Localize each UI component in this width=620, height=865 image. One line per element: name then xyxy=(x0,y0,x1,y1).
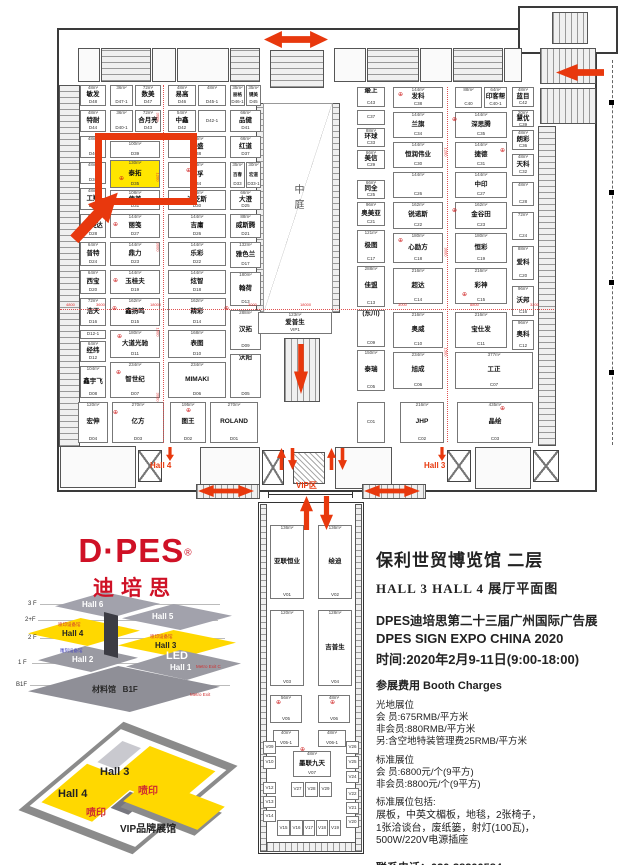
facility-block xyxy=(334,48,366,82)
booth-D45[interactable]: 35m²键美D45 xyxy=(246,85,261,106)
hydrant-icon: ⊕ xyxy=(398,92,403,98)
booth-name: 吉庸 xyxy=(191,223,204,230)
booth-name: 宏道 xyxy=(249,173,258,178)
booth-C11[interactable]: 216m²宝仕发C11 xyxy=(455,312,507,348)
booth-code: C22 xyxy=(414,223,422,228)
booth-area: 234m² xyxy=(191,363,204,368)
notch-stair xyxy=(552,12,588,44)
hydrant-icon: ⊕ xyxy=(276,700,281,706)
booth-V29[interactable]: V29 xyxy=(319,782,332,797)
booth-name: 金谷田 xyxy=(471,212,491,219)
facility-block xyxy=(177,48,229,82)
booth-C34[interactable]: 144m²兰旗C34 xyxy=(393,112,443,138)
atrium-top-escalator xyxy=(270,50,324,88)
booth-code: C38 xyxy=(414,102,422,107)
booth-area: 270m² xyxy=(132,403,145,408)
booth-name: 心励方 xyxy=(408,245,428,252)
booth-D46-1[interactable]: 35m²丽格D46-1 xyxy=(230,85,245,106)
booth-name: 晶绘 xyxy=(489,419,502,426)
elevator-icon xyxy=(533,450,559,482)
booth-C32[interactable]: 48m²天科C32 xyxy=(512,154,534,176)
booth-area: 88m² xyxy=(518,247,528,252)
dimension-text: 1500 xyxy=(443,348,447,357)
hydrant-icon: ⊕ xyxy=(330,700,335,706)
booth-code: C27 xyxy=(477,192,485,197)
booth-code: D07 xyxy=(131,392,139,397)
booth-C14[interactable]: 216m²超达C14 xyxy=(393,268,443,304)
booth-C15[interactable]: 216m²彩神C15 xyxy=(455,268,507,304)
booth-area: 216m² xyxy=(412,313,425,318)
booth-area: 162m² xyxy=(412,203,425,208)
booth-code: D37 xyxy=(241,152,249,157)
booth-V21[interactable]: V21 xyxy=(346,802,359,814)
booth-D06[interactable]: 234m²MIMAKID06 xyxy=(168,362,226,398)
hydrant-icon: ⊕ xyxy=(113,222,118,228)
b1f-caption: B1F xyxy=(123,685,138,694)
booth-D24[interactable]: 64m²普特D24 xyxy=(80,242,106,266)
standard-booth-title: 标准展位 xyxy=(376,756,616,767)
booth-code: D17 xyxy=(241,262,249,267)
booth-code: C31 xyxy=(477,162,485,167)
vip-base xyxy=(266,842,356,852)
booth-V26[interactable]: V26 xyxy=(346,741,359,754)
booth-D47[interactable]: 72m²数美D47 xyxy=(135,85,161,106)
booth-V28[interactable]: V28 xyxy=(305,782,318,797)
booth-C40-1[interactable]: 64m²印客帮C40-1 xyxy=(484,87,507,108)
booth-D42[interactable]: 54m²中鑫D42 xyxy=(168,110,196,132)
hall3-caption: 喷印设备馆 xyxy=(150,634,173,640)
booth-V15[interactable]: V15 xyxy=(277,820,290,836)
hydrant-icon: ⊕ xyxy=(500,406,505,412)
facility-block xyxy=(420,48,452,82)
booth-V25[interactable]: V25 xyxy=(346,756,359,769)
right-facility-strip xyxy=(538,126,556,446)
booth-C40[interactable]: 88m²C40 xyxy=(455,87,482,108)
booth-C10[interactable]: 216m²奥威C10 xyxy=(393,312,443,348)
booth-code: C32 xyxy=(519,170,527,175)
column-marker xyxy=(609,280,614,285)
booth-C37[interactable]: C37 xyxy=(357,110,385,125)
escalator-block xyxy=(453,48,503,82)
booth-D42-1[interactable]: D42-1 xyxy=(198,110,226,132)
booth-D20[interactable]: 64m²西宝D20 xyxy=(80,270,106,294)
booth-code: V10 xyxy=(265,760,273,765)
booth-C29[interactable]: 66m²美信C29 xyxy=(357,150,385,169)
column-marker xyxy=(609,370,614,375)
booth-code: V05-1 xyxy=(280,741,292,746)
venue-title: 保利世贸博览馆 二层 xyxy=(376,546,616,571)
booth-area: 136m² xyxy=(329,526,342,531)
booth-code: D10 xyxy=(193,352,201,357)
booth-D21[interactable]: 88m²威斯腾D21 xyxy=(230,214,261,238)
booth-D48[interactable]: 48m²敏发D48 xyxy=(80,85,106,106)
hydrant-icon: ⊕ xyxy=(117,334,122,340)
booth-code: C40-1 xyxy=(489,102,501,107)
booth-C31[interactable]: 144m²捷德C31 xyxy=(455,142,507,168)
booth-code: D42 xyxy=(178,126,186,131)
booth-code: C30 xyxy=(414,162,422,167)
booth-C12[interactable]: 96m²奥科C12 xyxy=(512,320,534,350)
booth-C16[interactable]: 96m²沃邦C16 xyxy=(512,286,534,316)
booth-D18[interactable]: 144m²炫智D18 xyxy=(168,270,226,294)
hydrant-icon: ⊕ xyxy=(112,306,117,312)
booth-code: D22 xyxy=(193,260,201,265)
booth-C24[interactable]: 72m²C24 xyxy=(512,212,534,240)
booth-D41[interactable]: 66m²品健D41 xyxy=(230,110,261,132)
booth-C28[interactable]: 48m²C28 xyxy=(512,182,534,206)
booth-code: V04 xyxy=(331,680,339,685)
booth-code: V22 xyxy=(348,792,356,797)
booth-C33[interactable]: 88m²环球C33 xyxy=(357,128,385,147)
booth-code: D43 xyxy=(144,126,152,131)
booth-code: D08 xyxy=(89,392,97,397)
metro-exit-c-label: Metro Exit C xyxy=(196,664,221,669)
booth-code: D48 xyxy=(89,100,97,105)
booth-code: D02 xyxy=(184,437,192,442)
booth-code: D45-1 xyxy=(206,100,218,105)
booth-code: D40-1 xyxy=(115,126,127,131)
booth-area: 216m² xyxy=(416,403,429,408)
booth-area: 195m² xyxy=(182,403,195,408)
booth-D45-1[interactable]: 48m²D45-1 xyxy=(198,85,226,106)
booth-D09[interactable]: 288m²汉拓D09 xyxy=(230,310,261,350)
booth-area: 48m² xyxy=(207,86,217,91)
booth-V27[interactable]: V27 xyxy=(291,782,304,797)
booth-D47-1[interactable]: 36m²D47-1 xyxy=(110,85,133,106)
booth-name: 佳盟 xyxy=(365,283,378,290)
booth-V12[interactable]: V12 xyxy=(263,782,276,794)
booth-D07[interactable]: 234m²智世纪D07 xyxy=(110,362,160,398)
booth-area: 377m² xyxy=(488,353,501,358)
booth-V24[interactable]: V24 xyxy=(346,771,359,783)
booth-name: 汉拓 xyxy=(239,327,252,334)
booth-V13[interactable]: V13 xyxy=(263,796,276,808)
hydrant-icon: ⊕ xyxy=(186,408,191,414)
booth-V20[interactable]: V20 xyxy=(346,816,359,828)
booth-code: D26 xyxy=(193,232,201,237)
charges-title: 参展费用 Booth Charges xyxy=(376,677,616,693)
hydrant-icon: ⊕ xyxy=(224,306,229,312)
booth-D12-1[interactable]: D12-1 xyxy=(80,330,106,339)
booth-area: 270m² xyxy=(228,403,241,408)
booth-area: 72m² xyxy=(143,111,153,116)
booth-area: 121m² xyxy=(365,231,378,236)
booth-C17[interactable]: 121m²极图C17 xyxy=(357,230,385,263)
booth-D40-1[interactable]: 36m²D40-1 xyxy=(110,110,133,132)
booth-D22[interactable]: 144m²乐彩D22 xyxy=(168,242,226,266)
non-member-price: 非会员:880RMB/平方米 xyxy=(376,725,616,736)
booth-area: 36m² xyxy=(116,86,126,91)
booth-code: C25 xyxy=(367,193,375,198)
booth-code: V03 xyxy=(283,680,291,685)
booth-D13[interactable]: 180m²翰荷D13 xyxy=(230,272,261,306)
dimension-text: 8800 xyxy=(470,303,479,307)
hall4-label: Hall 4 xyxy=(150,461,171,470)
booth-V18[interactable]: V18 xyxy=(316,820,328,836)
dimension-text: 3000 xyxy=(155,113,159,122)
booth-name: 绘迪 xyxy=(329,559,342,566)
booth-code: V29 xyxy=(321,787,329,792)
booth-area: 144m² xyxy=(475,113,488,118)
booth-code: V21 xyxy=(348,806,356,811)
booth-code: C07 xyxy=(490,383,498,388)
booth-code: D27 xyxy=(131,232,139,237)
booth-C19[interactable]: 180m²恒彩C19 xyxy=(455,233,507,263)
booth-code: V20 xyxy=(348,820,356,825)
stair-block xyxy=(540,48,596,84)
booth-code: C18 xyxy=(414,257,422,262)
brand-logo: D·PES® 迪培思 xyxy=(50,532,220,602)
booth-code: V25 xyxy=(348,760,356,765)
booth-area: 144m² xyxy=(412,113,425,118)
includes-line1: 展板，中英文楣板，地毯，2张椅子， xyxy=(376,810,616,822)
booth-area: 40m² xyxy=(281,731,291,736)
booth-code: VIP1 xyxy=(290,328,300,333)
stair-block xyxy=(540,88,596,124)
hydrant-icon: ⊕ xyxy=(398,238,403,244)
booth-name: 吉普生 xyxy=(325,645,345,652)
booth-area: 180m² xyxy=(475,234,488,239)
booth-name: 鼎力 xyxy=(129,251,142,258)
booth-D14[interactable]: 162m²精彩D14 xyxy=(168,298,226,326)
brand-chinese: 迪培思 xyxy=(50,572,220,602)
booth-C22[interactable]: 162m²锐诺斯C22 xyxy=(393,202,443,229)
booth-D08[interactable]: 104m²鑫宇飞D08 xyxy=(80,366,106,398)
booth-C27[interactable]: 144m²中印C27 xyxy=(455,172,507,198)
booth-area: 144m² xyxy=(191,243,204,248)
booth-name: 大道光驰 xyxy=(122,341,148,348)
vip-area-label: VIP区 xyxy=(296,480,317,491)
booth-C42[interactable]: 48m²蓝目C42 xyxy=(512,87,534,107)
booth-area: 120m² xyxy=(281,611,294,616)
booth-name: 爱普生 xyxy=(285,320,305,327)
booth-area: 48m² xyxy=(88,111,98,116)
expo-time: 时间:2020年2月9-11日(9:00-18:00) xyxy=(376,649,616,668)
booth-area: 162m² xyxy=(475,203,488,208)
booth-V10[interactable]: V10 xyxy=(263,756,276,769)
booth-code: C09 xyxy=(367,341,375,346)
column-marker xyxy=(609,100,614,105)
standard-member-price: 会 员:6800元/个(9平方) xyxy=(376,768,616,779)
booth-name: 捷德 xyxy=(475,152,488,159)
floor-label-3f: 3 F xyxy=(28,601,37,607)
booth-area: 64m² xyxy=(88,271,98,276)
booth-V16[interactable]: V16 xyxy=(290,820,303,836)
booth-area: 123m² xyxy=(289,313,302,318)
booth-C20[interactable]: 88m²爱科C20 xyxy=(512,246,534,280)
booth-name: 键美 xyxy=(249,93,258,98)
booth-name: 经纬 xyxy=(87,348,100,355)
atrium-label: 中庭 xyxy=(290,184,305,214)
booth-name: (东川) xyxy=(362,311,379,318)
booth-C36[interactable]: 48m²朗彩C36 xyxy=(512,130,534,150)
booth-area: 48m² xyxy=(177,86,187,91)
booth-name: 宏伸 xyxy=(87,419,100,426)
dimension-text: 3000 xyxy=(248,303,257,307)
booth-code: C29 xyxy=(367,163,375,168)
dimension-line xyxy=(60,309,554,310)
booth-code: C37 xyxy=(367,115,375,120)
booth-C13[interactable]: 288m²佳盟C13 xyxy=(357,266,385,307)
booth-V06-1[interactable]: 48m²V06-1 xyxy=(318,730,346,747)
metro-exit-label: Metro Exit xyxy=(190,692,210,697)
booth-area: 72m² xyxy=(143,86,153,91)
booth-name: 翰荷 xyxy=(239,286,252,293)
booth-D23[interactable]: 144m²鼎力D23 xyxy=(110,242,160,266)
booth-area: 66m² xyxy=(240,137,250,142)
booth-C02[interactable]: 216m²JHPC02 xyxy=(400,402,444,443)
booth-D46[interactable]: 48m²易高D46 xyxy=(168,85,196,106)
booth-V17[interactable]: V17 xyxy=(303,820,315,836)
booth-name: 奥科 xyxy=(517,332,530,339)
booth-C03[interactable]: 435m²晶绘C03 xyxy=(457,402,533,443)
booth-C01[interactable]: C01 xyxy=(357,402,385,443)
booth-code: D46 xyxy=(178,100,186,105)
expo-name-en: DPES SIGN EXPO CHINA 2020 xyxy=(376,631,616,646)
booth-V05-1[interactable]: 40m²V05-1 xyxy=(273,730,299,747)
booth-code: V19 xyxy=(331,826,339,831)
booth-name: 雅色兰 xyxy=(236,252,256,259)
booth-C06[interactable]: 234m²旭成C06 xyxy=(393,352,443,389)
booth-code: V16 xyxy=(292,826,300,831)
escalator-block xyxy=(101,48,151,82)
booth-V03[interactable]: 120m²V03 xyxy=(270,610,304,686)
booth-C05[interactable]: 150m²泰瑞C05 xyxy=(357,350,385,391)
booth-code: C16 xyxy=(519,310,527,315)
mini-vip-label: VIP品牌展馆 xyxy=(120,820,176,835)
booth-C39[interactable]: 20m²慧优C39 xyxy=(512,110,534,127)
booth-name: 恒彩 xyxy=(475,245,488,252)
management-fee-note: 另:含空地特装管理费25RMB/平方米 xyxy=(376,737,616,748)
hall2-caption: 雕刻设备馆 xyxy=(60,648,83,654)
booth-D10[interactable]: 168m²表图D10 xyxy=(168,330,226,358)
booth-C09[interactable]: (东川)C09 xyxy=(357,310,385,347)
booth-V01[interactable]: 136m²亚联恒业V01 xyxy=(270,525,304,599)
booth-D25[interactable]: 66m²大澄D25 xyxy=(230,190,261,210)
booth-D33-1[interactable]: 30m²宏道D33-1 xyxy=(246,162,261,188)
booth-code: D24 xyxy=(89,260,97,265)
booth-D44[interactable]: 48m²特耐D44 xyxy=(80,110,106,132)
booth-C23[interactable]: 162m²金谷田C23 xyxy=(455,202,507,229)
booth-V14[interactable]: V14 xyxy=(263,810,276,822)
booth-name: 数美 xyxy=(142,92,155,99)
booth-V19[interactable]: V19 xyxy=(329,820,341,836)
booth-area: 216m² xyxy=(475,269,488,274)
booth-D03[interactable]: 270m²亿方D03 xyxy=(112,402,164,443)
booth-C25[interactable]: 66m²同全C25 xyxy=(357,180,385,199)
booth-code: C36 xyxy=(519,144,527,149)
booth-code: D45 xyxy=(249,100,257,105)
booth-C43[interactable]: 最上C43 xyxy=(357,87,385,107)
booth-name: 发科 xyxy=(412,94,425,101)
booth-code: C21 xyxy=(367,220,375,225)
bracket-tick xyxy=(268,491,269,498)
booth-V09[interactable]: V09 xyxy=(263,741,276,754)
booth-D17[interactable]: 132m²雅色兰D17 xyxy=(230,242,261,268)
stair-core xyxy=(104,612,118,658)
booth-D33[interactable]: 35m²百春D33 xyxy=(230,162,245,188)
expo-name-cn: DPES迪培思第二十三届广州国际广告展 xyxy=(376,610,616,629)
column-marker xyxy=(609,190,614,195)
hydrant-icon: ⊕ xyxy=(113,278,118,284)
booth-code: C20 xyxy=(519,274,527,279)
booth-C35[interactable]: 144m²深思腾C35 xyxy=(455,112,507,138)
booth-code: C01 xyxy=(367,420,375,425)
booth-name: 深思腾 xyxy=(471,122,491,129)
bracket-tick xyxy=(352,491,353,498)
booth-name: 奥威 xyxy=(412,327,425,334)
facility-block xyxy=(60,446,136,488)
booth-code: D42-1 xyxy=(206,119,218,124)
facility-block xyxy=(78,48,100,82)
dimension-text: 3000 xyxy=(443,248,447,257)
booth-area: 48m² xyxy=(307,752,317,757)
dimension-text: 18000 xyxy=(300,303,311,307)
booth-code: V05 xyxy=(282,717,290,722)
booth-name: 爱科 xyxy=(517,260,530,267)
booth-D26[interactable]: 144m²吉庸D26 xyxy=(168,214,226,238)
booth-code: D21 xyxy=(241,232,249,237)
booth-name: 普特 xyxy=(87,251,100,258)
booth-name: 极图 xyxy=(365,243,378,250)
booth-D12[interactable]: 64m²经纬D12 xyxy=(80,341,106,362)
booth-V07[interactable]: 48m²墨联九天V07 xyxy=(293,751,331,777)
booth-code: V01 xyxy=(283,593,291,598)
booth-code: C34 xyxy=(414,132,422,137)
booth-D05[interactable]: 沃阳D05 xyxy=(230,354,261,398)
booth-name: 墨联九天 xyxy=(299,761,325,768)
booth-C26[interactable]: 144m²C26 xyxy=(393,172,443,198)
booth-D04[interactable]: 120m²宏伸D04 xyxy=(78,402,108,443)
booth-name: 沃阳 xyxy=(239,355,252,362)
booth-name: 炫智 xyxy=(191,279,204,286)
hydrant-icon: ⊕ xyxy=(462,292,467,298)
booth-area: 35m² xyxy=(232,86,242,91)
booth-D01[interactable]: 270m²ROLANDD01 xyxy=(210,402,258,443)
booth-C21[interactable]: 96m²奥美亚C21 xyxy=(357,202,385,226)
booth-code: D25 xyxy=(241,204,249,209)
booth-area: 64m² xyxy=(88,342,98,347)
booth-D37[interactable]: 66m²红道D37 xyxy=(230,136,261,158)
booth-name: 智世纪 xyxy=(125,377,145,384)
booth-VIP1[interactable]: 123m²爱普生VIP1 xyxy=(258,312,332,334)
booth-area: 54m² xyxy=(177,111,187,116)
hall4-caption: 喷印设备馆 xyxy=(58,622,81,628)
booth-name: 亚联恒业 xyxy=(274,559,300,566)
booth-name: 易高 xyxy=(176,92,189,99)
booth-area: 48m² xyxy=(327,731,337,736)
booth-area: 144m² xyxy=(412,143,425,148)
booth-name: 印客帮 xyxy=(486,94,506,101)
booth-area: 48m² xyxy=(518,183,528,188)
hall6-label: Hall 6 xyxy=(82,600,103,609)
booth-code: D16 xyxy=(89,320,97,325)
booth-V05[interactable]: 56m²V05 xyxy=(270,695,302,723)
booth-area: 48m² xyxy=(88,86,98,91)
booth-name: 威斯腾 xyxy=(236,223,256,230)
dimension-text: 1500 xyxy=(155,328,159,337)
booth-code: D28 xyxy=(89,232,97,237)
floor-label-b1f: B1F xyxy=(16,682,27,688)
booth-V04[interactable]: 128m²吉普生V04 xyxy=(318,610,352,686)
hall5-label: Hall 5 xyxy=(152,612,173,621)
booth-C07[interactable]: 377m²工正C07 xyxy=(455,352,533,389)
booth-C30[interactable]: 144m²恒润伟业C30 xyxy=(393,142,443,168)
booth-V02[interactable]: 136m²绘迪V02 xyxy=(318,525,352,599)
boundary-dashed-line xyxy=(612,60,614,445)
booth-code: V26 xyxy=(348,745,356,750)
booth-V22[interactable]: V22 xyxy=(346,788,359,800)
